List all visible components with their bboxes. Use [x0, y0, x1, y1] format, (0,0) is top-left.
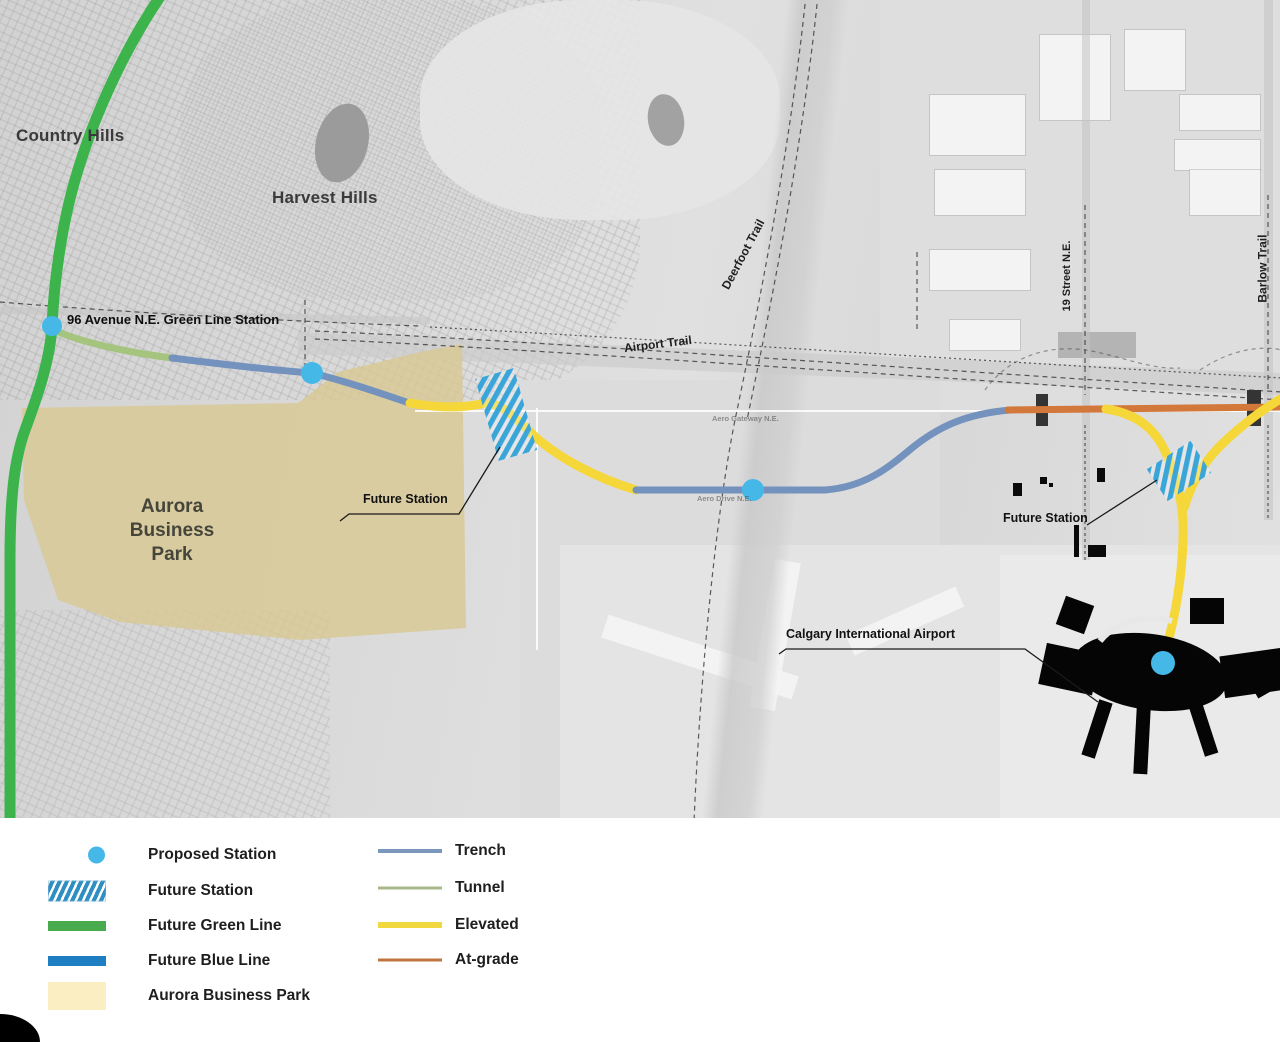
legend: Proposed Station Future Station Future G…	[0, 818, 1280, 1042]
label-aero-gateway: Aero Gateway N.E.	[712, 415, 779, 423]
label-aurora-business-park: Aurora Business Park	[112, 495, 232, 566]
legend-label: Tunnel	[455, 879, 505, 897]
station-dot-aurora	[301, 362, 323, 384]
trench-segment-west	[172, 358, 312, 373]
elevated-swatch	[378, 922, 442, 928]
station-dot-airport	[1151, 651, 1175, 675]
legend-label: Aurora Business Park	[148, 987, 310, 1005]
legend-label: Future Green Line	[148, 917, 282, 935]
label-future-station-west: Future Station	[363, 493, 448, 507]
future-station-hatch-west	[475, 368, 537, 461]
label-aero-drive: Aero Drive N.E.	[697, 495, 752, 503]
trench-segment-east	[636, 410, 1010, 490]
proposed-station-swatch	[88, 847, 105, 864]
label-96ave-green-line-station: 96 Avenue N.E. Green Line Station	[67, 313, 279, 327]
map-canvas: Country Hills Harvest Hills 96 Avenue N.…	[0, 0, 1280, 818]
future-green-line-swatch	[48, 921, 106, 931]
label-harvest-hills: Harvest Hills	[272, 189, 378, 208]
legend-label: Future Blue Line	[148, 952, 270, 970]
future-station-swatch	[48, 881, 106, 902]
trench-swatch	[378, 849, 442, 853]
future-blue-line-swatch	[48, 956, 106, 966]
tunnel-swatch	[378, 887, 442, 890]
label-19-street: 19 Street N.E.	[1061, 231, 1073, 321]
label-barlow-trail: Barlow Trail	[1256, 228, 1269, 310]
elevated-branch-east	[1184, 398, 1280, 508]
label-calgary-international-airport: Calgary International Airport	[786, 628, 955, 642]
route-overlay	[0, 0, 1280, 818]
label-country-hills: Country Hills	[16, 127, 124, 146]
legend-label: Elevated	[455, 916, 519, 934]
legend-label: Future Station	[148, 882, 253, 900]
transit-map-page: Country Hills Harvest Hills 96 Avenue N.…	[0, 0, 1280, 1042]
leader-future-station-east	[1087, 480, 1157, 525]
legend-label: Trench	[455, 842, 506, 860]
legend-label: Proposed Station	[148, 846, 276, 864]
label-future-station-east: Future Station	[1003, 512, 1088, 526]
at-grade-swatch	[378, 959, 442, 962]
future-station-hatch-east	[1147, 441, 1211, 501]
aurora-business-park-swatch	[48, 982, 106, 1010]
legend-label: At-grade	[455, 951, 519, 969]
station-dot-96ave	[42, 316, 62, 336]
at-grade-segment	[1008, 407, 1280, 410]
tunnel-segment	[54, 330, 172, 358]
